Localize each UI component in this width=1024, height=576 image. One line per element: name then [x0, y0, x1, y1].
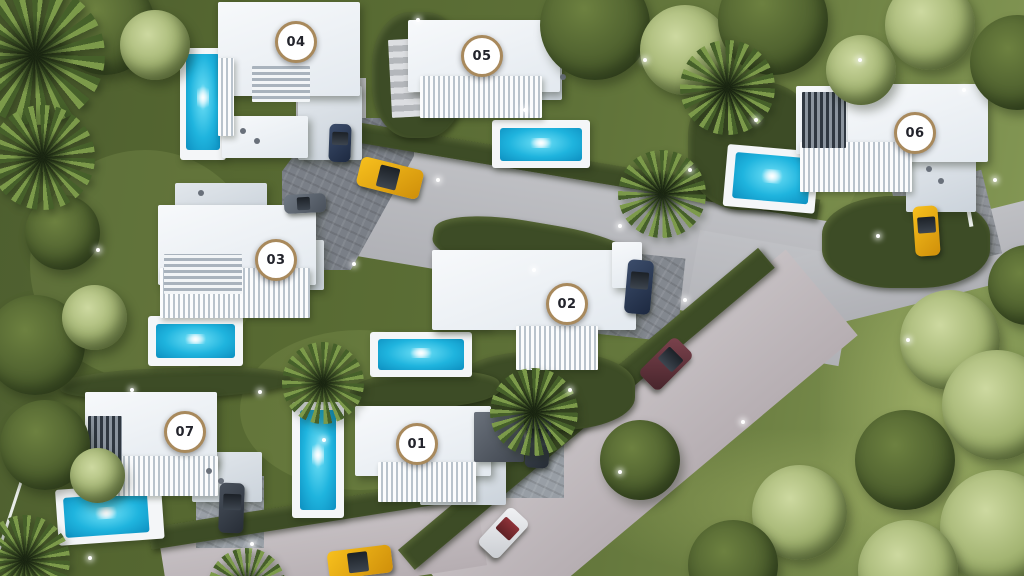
- pool-villa04: [186, 54, 220, 150]
- garden-light: [352, 262, 356, 266]
- unit-marker-05[interactable]: 05: [461, 35, 503, 77]
- villa-06-railing: [800, 142, 912, 192]
- terrace-furniture: [206, 468, 212, 474]
- pool-villa01: [300, 410, 336, 510]
- garden-light: [618, 224, 622, 228]
- villa-04-railing: [218, 58, 234, 136]
- garden-light: [618, 470, 622, 474]
- villa-03-pergola: [164, 254, 242, 294]
- villa-02-railing: [516, 326, 598, 370]
- villa-04-terrace: [222, 116, 308, 158]
- unit-number: 01: [407, 437, 426, 452]
- pool-villa05: [500, 128, 582, 161]
- car-dark-villa07-driveway: [218, 483, 245, 534]
- garden-light: [858, 58, 862, 62]
- garden-light: [523, 108, 527, 112]
- garden-light: [906, 338, 910, 342]
- garden-light: [130, 388, 134, 392]
- garden-light: [643, 58, 647, 62]
- palm-tree: [490, 368, 578, 456]
- unit-number: 04: [286, 35, 305, 50]
- garden-light: [962, 88, 966, 92]
- unit-number: 05: [472, 49, 491, 64]
- villa-04-pergola: [252, 66, 310, 102]
- garden-light: [322, 438, 326, 442]
- terrace-furniture: [560, 74, 566, 80]
- garden-light: [754, 118, 758, 122]
- unit-marker-03[interactable]: 03: [255, 239, 297, 281]
- palm-tree: [680, 40, 775, 135]
- unit-marker-06[interactable]: 06: [894, 112, 936, 154]
- car-navy-villa02-driveway: [624, 259, 655, 315]
- car-navy-villa04-garage: [328, 124, 351, 163]
- tree: [855, 410, 955, 510]
- unit-number: 03: [266, 253, 285, 268]
- tree: [62, 285, 127, 350]
- terrace-furniture: [254, 138, 260, 144]
- pool-villa02: [378, 339, 464, 370]
- unit-marker-04[interactable]: 04: [275, 21, 317, 63]
- unit-marker-07[interactable]: 07: [164, 411, 206, 453]
- villa-06-slat-roof: [802, 92, 846, 148]
- garden-light: [741, 420, 745, 424]
- tree: [70, 448, 125, 503]
- palm-tree: [282, 342, 364, 424]
- tree: [826, 35, 896, 105]
- palm-tree: [618, 150, 706, 238]
- villa-02-roof: [432, 250, 636, 330]
- garden-light: [876, 234, 880, 238]
- garden-light: [568, 388, 572, 392]
- garden-light: [88, 556, 92, 560]
- unit-marker-02[interactable]: 02: [546, 283, 588, 325]
- garden-light: [258, 390, 262, 394]
- villa-01-railing: [378, 462, 476, 502]
- tree: [120, 10, 190, 80]
- garden-light: [683, 298, 687, 302]
- unit-number: 07: [175, 425, 194, 440]
- terrace-furniture: [240, 128, 246, 134]
- terrace-furniture: [938, 178, 944, 184]
- garden-light: [250, 542, 254, 546]
- garden-light: [416, 18, 420, 22]
- terrace-furniture: [198, 190, 204, 196]
- unit-number: 02: [557, 297, 576, 312]
- unit-number: 06: [905, 126, 924, 141]
- garden-light: [532, 268, 536, 272]
- tree: [600, 420, 680, 500]
- garden-light: [436, 178, 440, 182]
- car-gray-villa03-carport: [284, 193, 327, 214]
- garden-light: [993, 178, 997, 182]
- garden-light: [96, 248, 100, 252]
- unit-marker-01[interactable]: 01: [396, 423, 438, 465]
- car-yellow-villa06: [912, 205, 940, 257]
- site-plan: 04 05 06 03 02 01 07: [0, 0, 1024, 576]
- terrace-furniture: [926, 166, 932, 172]
- garden-light: [688, 168, 692, 172]
- pool-villa03: [156, 324, 235, 358]
